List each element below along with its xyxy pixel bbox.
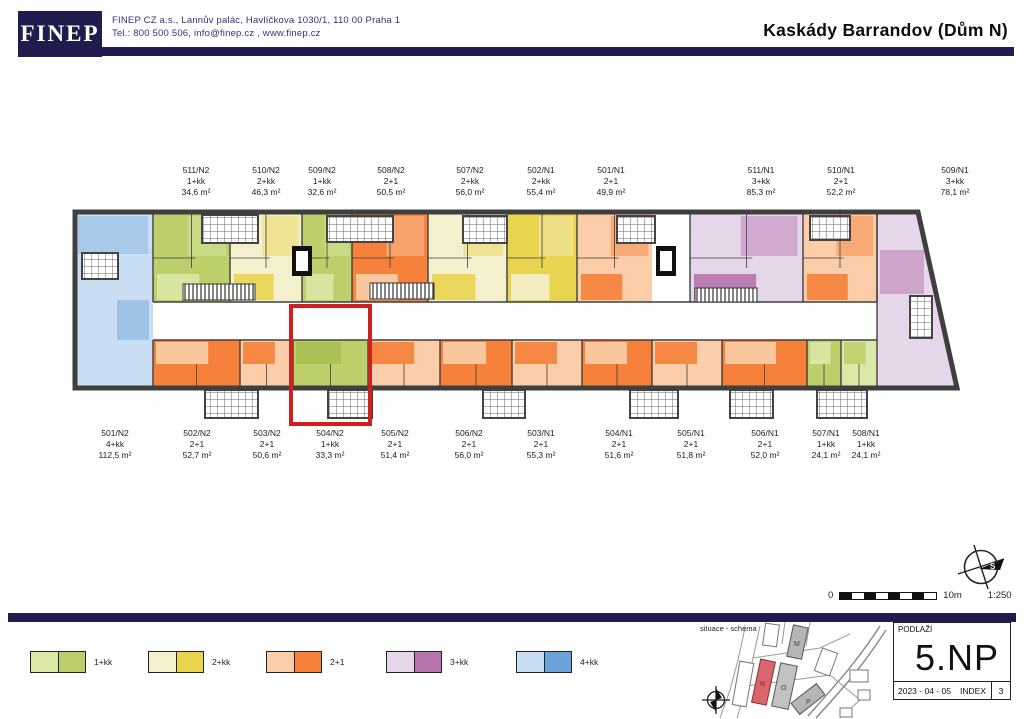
svg-text:M: M xyxy=(794,641,800,648)
floor-box-footer: 2023 - 04 - 05 INDEX 3 xyxy=(894,681,1010,699)
svg-text:N: N xyxy=(760,681,765,688)
site-building-n-highlight: N xyxy=(752,659,776,705)
scale-zero: 0 xyxy=(828,590,833,601)
scale-segment xyxy=(888,593,900,599)
legend-swatch xyxy=(148,651,204,673)
unit-label-504-N1: 504/N12+151,6 m² xyxy=(605,428,634,461)
site-map-label: situace - schéma xyxy=(700,624,757,633)
unit-label-505-N1: 505/N12+151,8 m² xyxy=(677,428,706,461)
legend-swatch xyxy=(30,651,86,673)
unit-label-501-N2: 501/N24+kk112,5 m² xyxy=(99,428,132,461)
svg-text:P: P xyxy=(806,699,811,706)
legend-item-4+kk: 4+kk xyxy=(516,651,598,673)
floor-info-box: PODLAŽÍ 5.NP 2023 - 04 - 05 INDEX 3 xyxy=(893,622,1011,700)
site-map: M N O P xyxy=(690,620,892,719)
site-building-p: P xyxy=(791,684,825,715)
legend-item-3+kk: 3+kk xyxy=(386,651,468,673)
swatch-dark xyxy=(177,652,204,672)
scale-segment xyxy=(924,593,936,599)
unit-label-508-N2: 508/N22+150,5 m² xyxy=(377,165,406,198)
floorplan-page: FINEP FINEP CZ a.s., Lannův palác, Havlí… xyxy=(0,0,1024,719)
unit-label-511-N2: 511/N21+kk34,6 m² xyxy=(182,165,211,198)
legend-item-2+1: 2+1 xyxy=(266,651,344,673)
scale-segment xyxy=(900,593,912,599)
swatch-light xyxy=(31,652,59,672)
unit-label-510-N2: 510/N22+kk46,3 m² xyxy=(252,165,281,198)
swatch-light xyxy=(387,652,415,672)
legend-swatch xyxy=(386,651,442,673)
unit-label-506-N1: 506/N12+152,0 m² xyxy=(751,428,780,461)
unit-label-505-N2: 505/N22+151,4 m² xyxy=(381,428,410,461)
scale-segment xyxy=(864,593,876,599)
index-value: 3 xyxy=(991,682,1010,699)
drawing-date: 2023 - 04 - 05 xyxy=(894,686,960,696)
swatch-dark xyxy=(295,652,322,672)
legend-label: 3+kk xyxy=(450,657,468,667)
unit-label-511-N1: 511/N13+kk85,3 m² xyxy=(747,165,776,198)
scale-bar: 0 10m 1:250 xyxy=(828,590,1012,601)
unit-label-503-N1: 503/N12+155,3 m² xyxy=(527,428,556,461)
legend-label: 2+1 xyxy=(330,657,344,667)
swatch-light xyxy=(517,652,545,672)
legend-label: 2+kk xyxy=(212,657,230,667)
unit-label-507-N1: 507/N11+kk24,1 m² xyxy=(812,428,841,461)
scale-max: 10m xyxy=(943,590,961,601)
unit-label-503-N2: 503/N22+150,6 m² xyxy=(253,428,282,461)
scale-segment xyxy=(912,593,924,599)
unit-label-502-N1: 502/N12+kk55,4 m² xyxy=(527,165,556,198)
swatch-light xyxy=(267,652,295,672)
legend-label: 4+kk xyxy=(580,657,598,667)
legend-swatch xyxy=(516,651,572,673)
unit-label-510-N1: 510/N12+152,2 m² xyxy=(827,165,856,198)
site-compass-icon xyxy=(702,686,730,714)
scale-segment xyxy=(876,593,888,599)
floor-box-title: PODLAŽÍ xyxy=(894,623,1010,634)
north-compass-icon: S xyxy=(957,543,1005,591)
scale-ratio: 1:250 xyxy=(988,590,1012,601)
legend-item-1+kk: 1+kk xyxy=(30,651,112,673)
legend-swatch xyxy=(266,651,322,673)
swatch-light xyxy=(149,652,177,672)
unit-label-509-N2: 509/N21+kk32,6 m² xyxy=(308,165,337,198)
swatch-dark xyxy=(59,652,86,672)
unit-label-501-N1: 501/N12+149,9 m² xyxy=(597,165,626,198)
floor-number: 5.NP xyxy=(894,634,1010,681)
unit-label-504-N2: 504/N21+kk33,3 m² xyxy=(316,428,345,461)
legend-item-2+kk: 2+kk xyxy=(148,651,230,673)
legend-label: 1+kk xyxy=(94,657,112,667)
site-building-m: M xyxy=(787,625,808,659)
index-label: INDEX xyxy=(960,686,991,696)
unit-label-506-N2: 506/N22+156,0 m² xyxy=(455,428,484,461)
scale-bar-graphic xyxy=(839,592,937,600)
scale-segment xyxy=(840,593,852,599)
unit-label-509-N1: 509/N13+kk78,1 m² xyxy=(941,165,970,198)
swatch-dark xyxy=(545,652,572,672)
unit-label-502-N2: 502/N22+152,7 m² xyxy=(183,428,212,461)
compass-north-label: S xyxy=(990,562,996,571)
scale-segment xyxy=(852,593,864,599)
swatch-dark xyxy=(415,652,442,672)
svg-text:O: O xyxy=(781,685,787,692)
unit-label-507-N2: 507/N22+kk56,0 m² xyxy=(456,165,485,198)
unit-label-508-N1: 508/N11+kk24,1 m² xyxy=(852,428,881,461)
floorplan-drawing xyxy=(0,0,1024,719)
